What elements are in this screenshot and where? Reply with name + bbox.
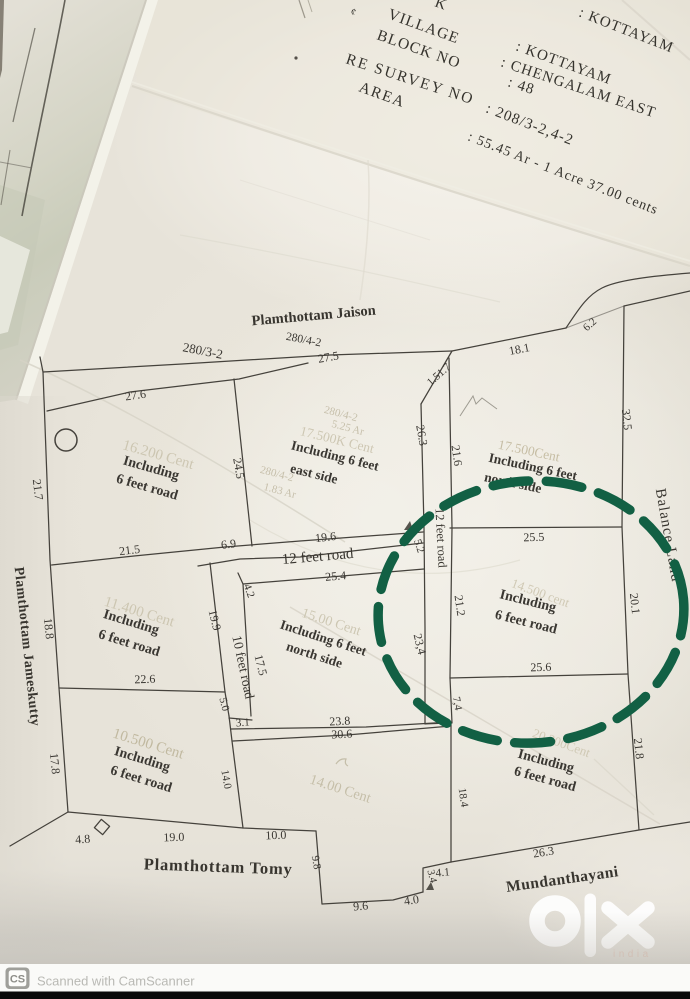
svg-text:32.5: 32.5	[619, 408, 635, 430]
svg-text:6.9: 6.9	[220, 536, 237, 552]
svg-text:10.0: 10.0	[265, 828, 286, 843]
svg-text:22.6: 22.6	[134, 672, 155, 687]
svg-text:20.1: 20.1	[627, 592, 643, 614]
svg-text:7,4: 7,4	[450, 696, 464, 712]
svg-text:9.6: 9.6	[353, 898, 369, 913]
svg-text:4.1: 4.1	[435, 866, 451, 879]
svg-text:27.6: 27.6	[124, 387, 147, 404]
svg-text:3.1: 3.1	[236, 717, 251, 730]
svg-text:19.6: 19.6	[314, 529, 336, 545]
svg-text:30.6: 30.6	[331, 726, 353, 741]
svg-text:19.0: 19.0	[163, 830, 184, 845]
svg-text:21.2: 21.2	[452, 594, 469, 617]
svg-text:21.5: 21.5	[118, 542, 141, 558]
svg-text:Scanned with CamScanner: Scanned with CamScanner	[37, 974, 195, 989]
svg-text:21.6: 21.6	[449, 444, 466, 467]
svg-text:25.6: 25.6	[530, 660, 551, 675]
svg-text:4.0: 4.0	[403, 892, 420, 908]
svg-text:CS: CS	[10, 974, 25, 986]
svg-text:25.4: 25.4	[325, 568, 347, 584]
svg-text:21.8: 21.8	[631, 737, 647, 759]
svg-text:17.8: 17.8	[47, 752, 63, 774]
svg-text:18.8: 18.8	[41, 617, 57, 639]
svg-text:4.8: 4.8	[75, 832, 91, 847]
svg-text:25.5: 25.5	[523, 530, 544, 545]
svg-text:21.7: 21.7	[30, 478, 46, 501]
svg-text:9.8: 9.8	[309, 855, 323, 871]
